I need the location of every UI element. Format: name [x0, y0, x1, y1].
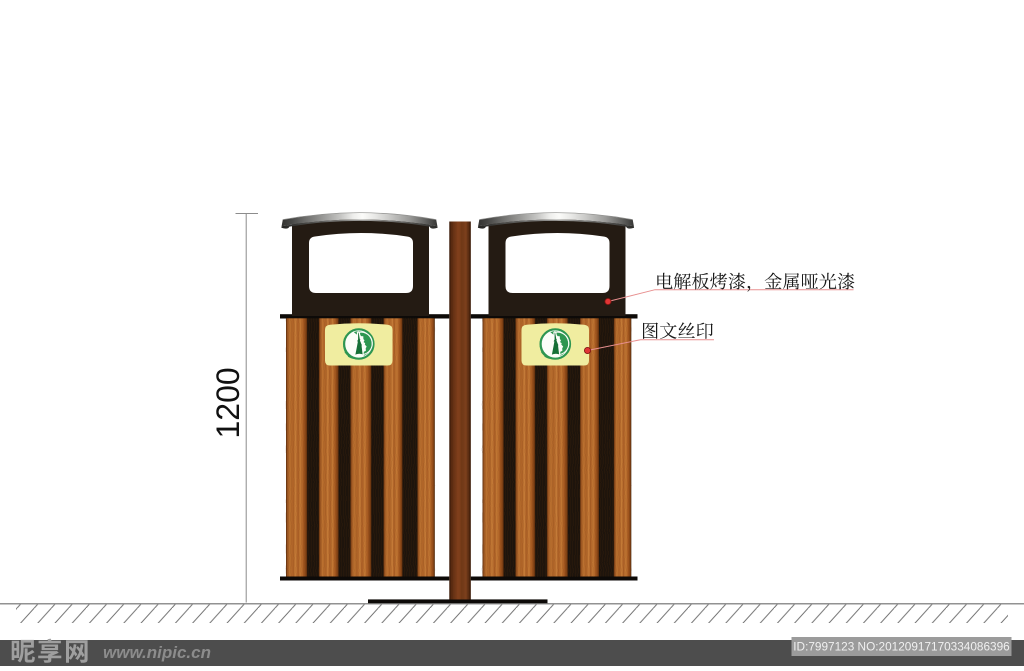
svg-text:www.nipic.cn: www.nipic.cn	[103, 643, 211, 662]
svg-text:ID:7997123 NO:2012091717033408: ID:7997123 NO:20120917170334086396	[793, 640, 1010, 654]
svg-text:1200: 1200	[210, 367, 246, 438]
